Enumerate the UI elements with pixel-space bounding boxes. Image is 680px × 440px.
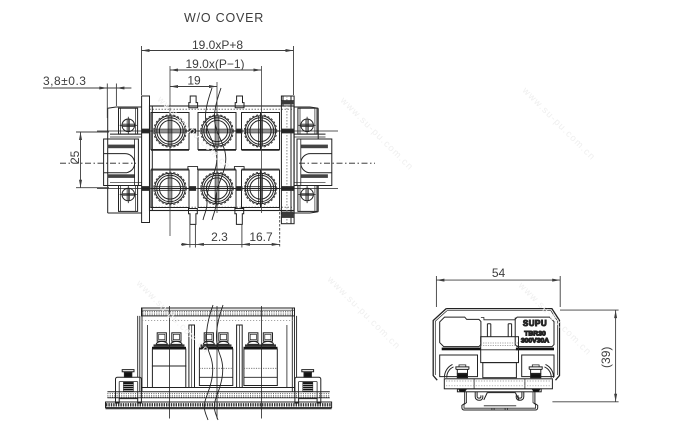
svg-text:16.7: 16.7 — [249, 230, 273, 244]
svg-text:19: 19 — [187, 74, 201, 88]
svg-text:(39): (39) — [599, 347, 613, 368]
svg-text:SUPU: SUPU — [523, 319, 547, 328]
svg-text:300V30A: 300V30A — [521, 338, 549, 345]
svg-text:3,8±0.3: 3,8±0.3 — [43, 74, 86, 88]
svg-text:54: 54 — [492, 266, 506, 280]
svg-text:25: 25 — [68, 150, 82, 164]
svg-text:TBR30: TBR30 — [524, 331, 546, 338]
svg-text:W/O COVER: W/O COVER — [184, 11, 264, 25]
svg-text:19.0xP+8: 19.0xP+8 — [192, 38, 243, 52]
svg-text:19.0x(P−1): 19.0x(P−1) — [185, 57, 244, 71]
svg-text:2.3: 2.3 — [211, 230, 228, 244]
